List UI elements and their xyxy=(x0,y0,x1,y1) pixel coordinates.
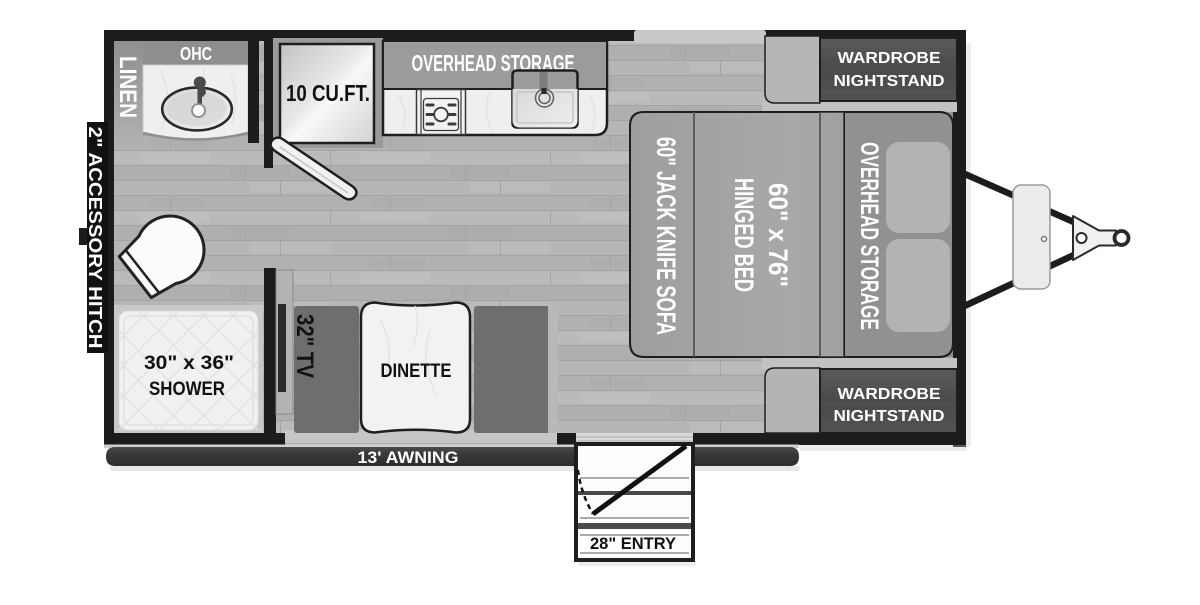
svg-text:OVERHEAD STORAGE: OVERHEAD STORAGE xyxy=(855,142,883,330)
svg-text:NIGHTSTAND: NIGHTSTAND xyxy=(834,408,945,425)
svg-text:28" ENTRY: 28" ENTRY xyxy=(590,534,677,553)
svg-text:WARDROBE: WARDROBE xyxy=(838,386,941,403)
svg-text:HINGED BED: HINGED BED xyxy=(729,178,759,292)
svg-text:WARDROBE: WARDROBE xyxy=(838,50,941,67)
svg-text:60" x 76": 60" x 76" xyxy=(763,183,793,287)
svg-text:30" x 36": 30" x 36" xyxy=(144,353,234,374)
svg-text:SHOWER: SHOWER xyxy=(149,379,225,400)
svg-text:LINEN: LINEN xyxy=(114,56,141,118)
svg-text:OHC: OHC xyxy=(180,44,212,64)
svg-text:13' AWNING: 13' AWNING xyxy=(358,448,459,467)
svg-text:2" ACCESSORY HITCH: 2" ACCESSORY HITCH xyxy=(85,127,105,349)
svg-text:NIGHTSTAND: NIGHTSTAND xyxy=(834,73,945,90)
svg-text:DINETTE: DINETTE xyxy=(381,361,452,382)
svg-text:32" TV: 32" TV xyxy=(291,314,318,378)
svg-text:60" JACK KNIFE SOFA: 60" JACK KNIFE SOFA xyxy=(651,137,681,335)
svg-text:10 CU.FT.: 10 CU.FT. xyxy=(286,80,370,106)
